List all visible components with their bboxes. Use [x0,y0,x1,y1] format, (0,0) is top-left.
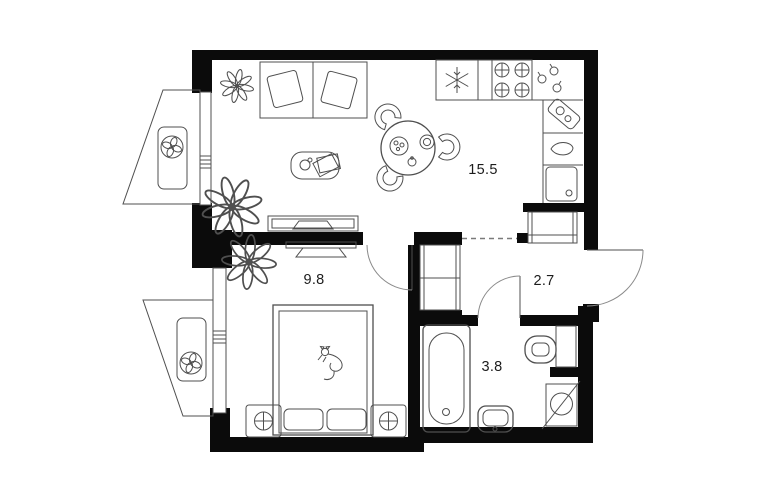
balcony-bottom [143,300,213,416]
door-entrance [587,250,643,306]
room-label-bathroom: 3.8 [481,359,502,375]
nightstand-left [246,405,281,437]
pillow [320,71,357,110]
stove [492,60,532,100]
window-living [200,92,211,205]
hallway-closet [528,212,577,243]
room-label-living-kitchen: 15.5 [468,162,497,178]
nightstand-lamp-icon [255,412,273,430]
door-bathroom [478,276,520,318]
cat-icon [318,347,342,380]
kitchen-sink-icon [551,143,573,155]
wardrobe [420,245,460,310]
fridge-snowflake-icon [446,67,469,93]
floor-plan: 15.5 9.8 2.7 3.8 [0,0,770,500]
dining-table [375,104,460,191]
air-conditioner-fan-icon [180,352,202,374]
bathtub [423,325,470,432]
kitchen-corner-items [538,64,561,92]
washing-machine-icon [542,381,580,429]
kitchen-basin-icon [546,167,577,201]
pillow [267,70,304,108]
stove-burners-icon [495,63,529,97]
coffee-table [291,152,340,179]
sofa [260,62,367,118]
tv [296,248,346,257]
bed [273,305,373,435]
air-conditioner-fan-icon [161,136,183,158]
window-bedroom [213,268,226,413]
chair [439,134,460,160]
toilet [525,336,556,363]
cutting-board-icon [547,98,582,131]
tv-console-living [268,216,358,231]
door-bedroom [367,245,412,290]
balcony-top [123,90,200,204]
nightstand-right [371,405,406,437]
room-label-bedroom: 9.8 [303,272,324,288]
ac-unit [177,318,206,381]
chair [375,104,401,130]
plate [390,137,408,155]
nightstand-lamp-icon [380,412,398,430]
shaft [556,326,576,367]
bed-pillow [327,409,366,430]
bed-pillow [284,409,323,430]
plate [420,135,434,149]
room-label-hallway: 2.7 [533,273,554,289]
exterior-walls [192,50,599,452]
floor-plan-canvas: 15.5 9.8 2.7 3.8 [0,0,770,500]
plant-icon [217,66,257,106]
chair [377,166,403,191]
